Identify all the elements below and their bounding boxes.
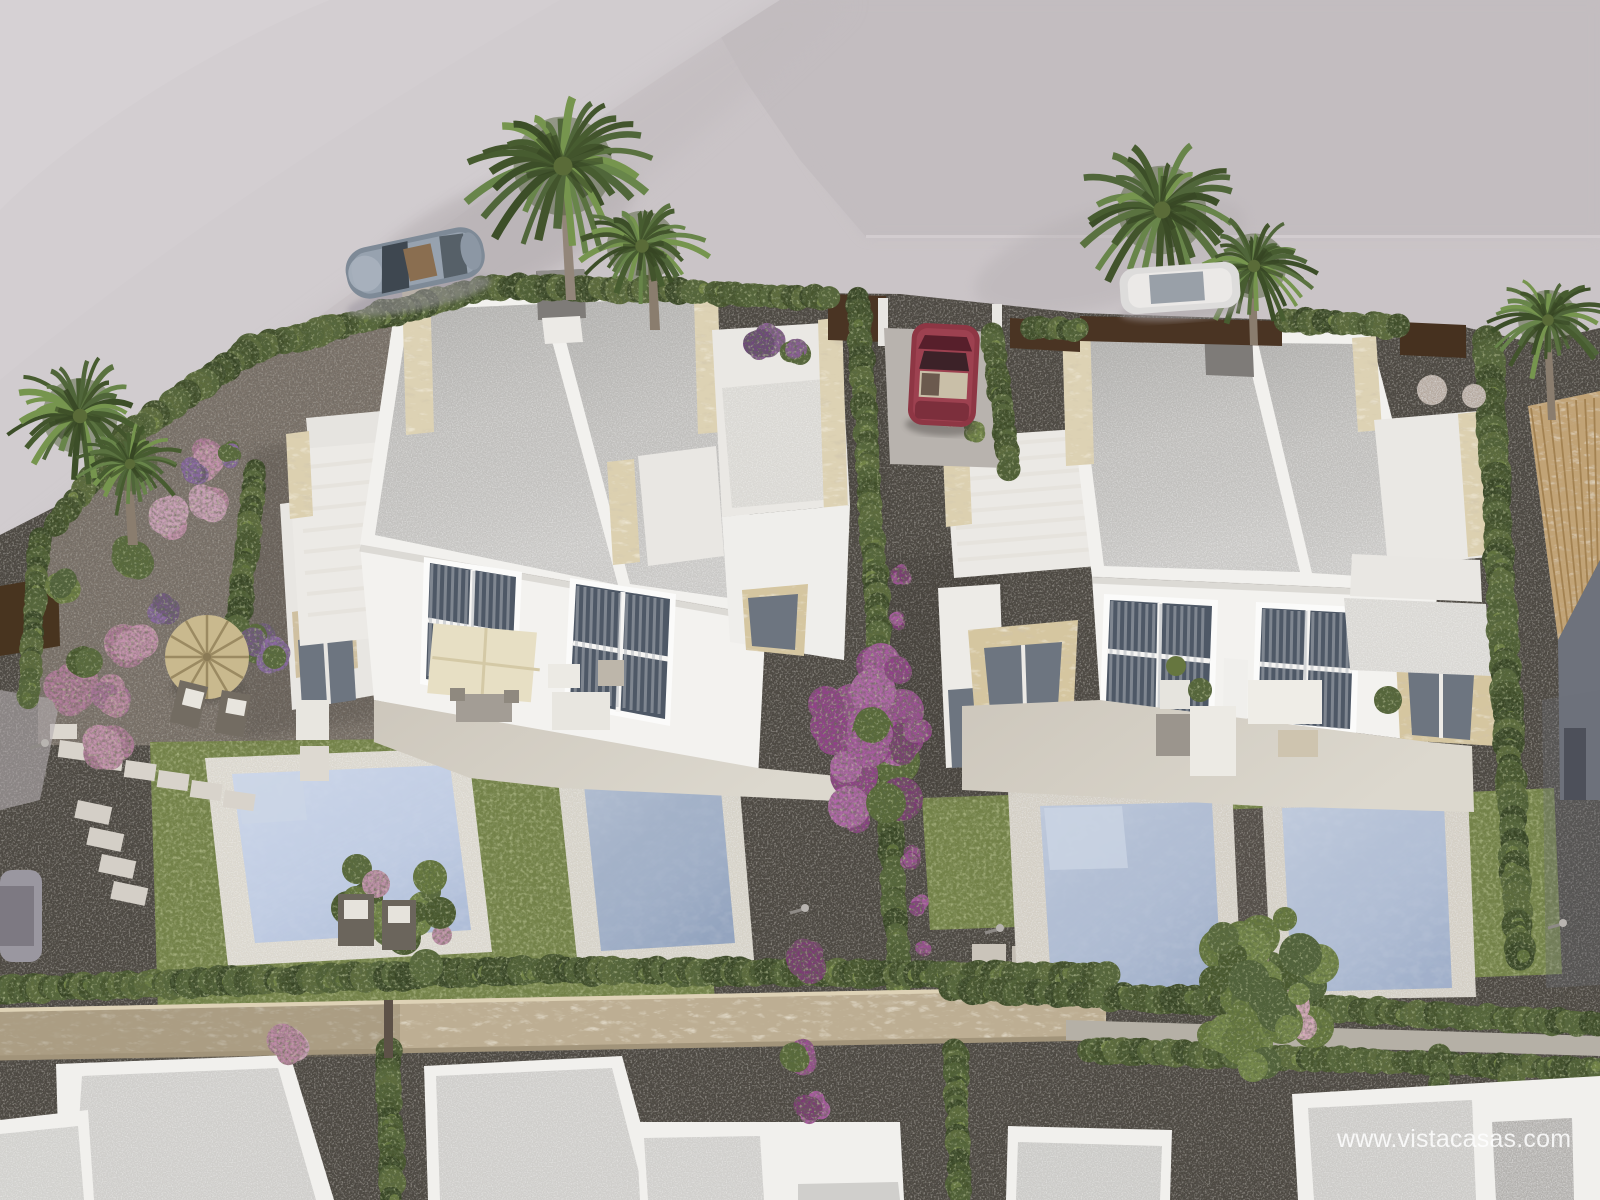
- svg-text:www.vistacasas.com: www.vistacasas.com: [1336, 1125, 1571, 1153]
